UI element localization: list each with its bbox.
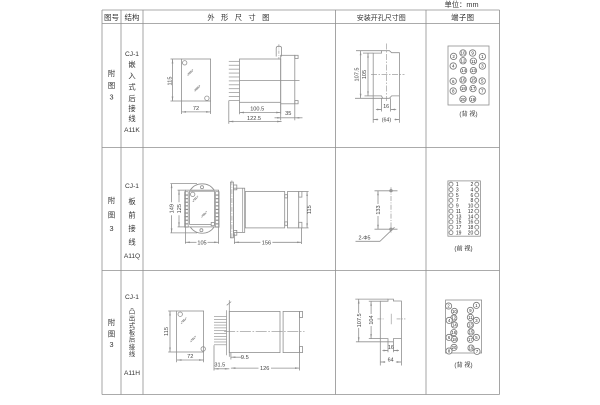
svg-text:115: 115	[168, 77, 174, 86]
svg-text:13: 13	[471, 68, 477, 73]
svg-text:104: 104	[369, 315, 375, 324]
svg-text:A11H: A11H	[124, 370, 140, 377]
svg-text:端子图: 端子图	[451, 13, 474, 22]
svg-text:15: 15	[469, 330, 474, 335]
svg-text:16: 16	[451, 330, 456, 335]
svg-text:72: 72	[187, 354, 193, 360]
svg-text:(64): (64)	[382, 117, 392, 123]
svg-text:CJ-1: CJ-1	[125, 51, 139, 58]
svg-text:出: 出	[129, 313, 135, 322]
svg-text:10: 10	[460, 51, 466, 56]
svg-text:图: 图	[108, 81, 115, 90]
svg-text:19: 19	[456, 230, 462, 236]
svg-text:125: 125	[177, 204, 183, 213]
svg-text:图: 图	[108, 330, 115, 339]
svg-text:13: 13	[468, 323, 473, 328]
svg-text:11: 11	[468, 315, 473, 320]
svg-text:安装开孔尺寸图: 安装开孔尺寸图	[357, 13, 406, 22]
svg-text:(前 视): (前 视)	[454, 245, 472, 253]
svg-text:外形尺寸图: 外形尺寸图	[207, 13, 275, 22]
svg-text:前: 前	[128, 211, 135, 220]
svg-text:16: 16	[383, 104, 389, 110]
svg-text:附: 附	[108, 196, 116, 205]
svg-text:122.5: 122.5	[247, 116, 261, 122]
svg-text:149: 149	[170, 204, 176, 213]
svg-text:接: 接	[129, 342, 136, 351]
svg-text:单位：mm: 单位：mm	[444, 0, 478, 9]
svg-text:72: 72	[193, 106, 199, 112]
svg-text:18: 18	[461, 86, 467, 91]
svg-text:31.5: 31.5	[214, 362, 225, 368]
svg-text:板: 板	[129, 328, 136, 337]
svg-text:式: 式	[128, 83, 136, 92]
svg-text:(背 视): (背 视)	[454, 361, 472, 369]
svg-text:嵌: 嵌	[128, 60, 135, 69]
svg-text:后: 后	[128, 94, 135, 103]
svg-text:图号: 图号	[104, 13, 119, 22]
svg-text:(背 视): (背 视)	[459, 110, 477, 118]
svg-text:126: 126	[260, 366, 269, 372]
svg-text:A11Q: A11Q	[124, 253, 140, 260]
svg-text:12: 12	[460, 58, 466, 63]
svg-text:接: 接	[128, 224, 136, 233]
svg-text:A11K: A11K	[124, 127, 140, 134]
svg-text:图: 图	[108, 211, 115, 220]
svg-text:105: 105	[197, 240, 206, 246]
svg-text:2-Φ5: 2-Φ5	[358, 236, 370, 242]
svg-text:19: 19	[469, 346, 474, 351]
svg-text:105: 105	[362, 70, 368, 79]
svg-text:133: 133	[376, 205, 382, 214]
svg-text:19: 19	[470, 97, 476, 102]
svg-text:附: 附	[108, 318, 116, 327]
svg-text:凸: 凸	[129, 307, 135, 315]
svg-text:接: 接	[128, 104, 136, 113]
svg-text:结构: 结构	[125, 12, 140, 22]
svg-text:100.5: 100.5	[250, 107, 264, 113]
svg-text:16: 16	[388, 345, 394, 351]
svg-text:线: 线	[129, 349, 136, 358]
svg-text:入: 入	[128, 72, 136, 81]
svg-text:107.5: 107.5	[355, 68, 361, 82]
svg-text:9.5: 9.5	[241, 355, 249, 361]
svg-text:107.5: 107.5	[357, 313, 363, 327]
svg-text:CJ-1: CJ-1	[125, 183, 139, 190]
svg-text:线: 线	[128, 237, 136, 246]
svg-text:17: 17	[468, 337, 473, 342]
svg-text:式: 式	[129, 321, 136, 330]
svg-text:14: 14	[461, 68, 467, 73]
svg-text:156: 156	[262, 240, 271, 246]
svg-text:后: 后	[129, 335, 135, 344]
svg-text:18: 18	[452, 337, 457, 342]
svg-text:115: 115	[164, 327, 170, 336]
svg-text:17: 17	[470, 86, 476, 91]
svg-text:11: 11	[471, 59, 476, 64]
svg-text:14: 14	[452, 323, 457, 328]
svg-text:线: 线	[128, 114, 136, 123]
svg-text:3: 3	[109, 93, 113, 102]
svg-text:CJ-1: CJ-1	[125, 294, 139, 301]
svg-text:20: 20	[452, 345, 457, 350]
svg-text:35: 35	[285, 111, 291, 117]
svg-text:3: 3	[109, 224, 113, 233]
svg-text:20: 20	[460, 97, 466, 102]
svg-text:附: 附	[108, 69, 116, 78]
svg-text:3: 3	[109, 340, 113, 349]
svg-text:15: 15	[471, 78, 477, 83]
svg-text:板: 板	[128, 197, 136, 206]
svg-text:10: 10	[452, 309, 457, 314]
svg-text:20: 20	[468, 230, 474, 236]
svg-text:64: 64	[388, 358, 394, 364]
svg-text:16: 16	[460, 78, 466, 83]
svg-text:115: 115	[307, 205, 313, 214]
